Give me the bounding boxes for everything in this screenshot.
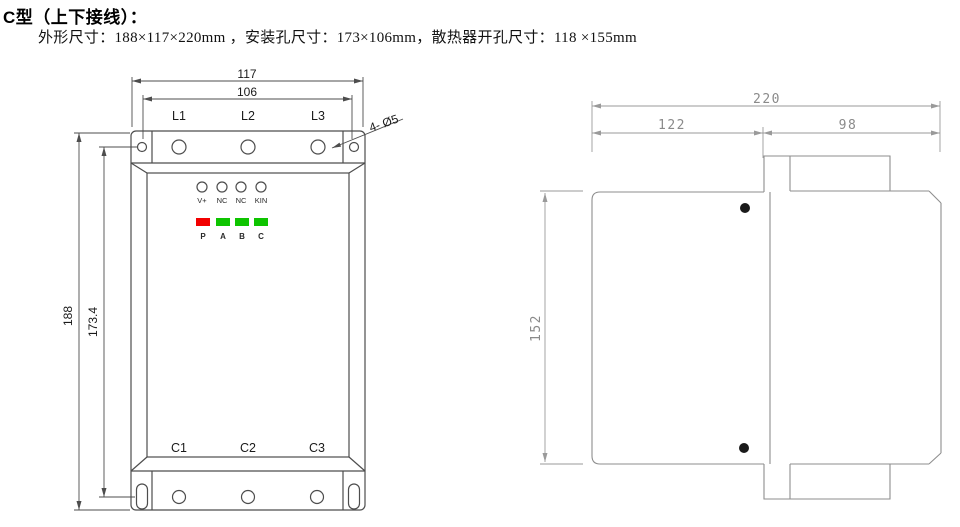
- side-view-drawing: 220 122 98 152: [529, 92, 941, 499]
- heatsink-chamfer-top: [929, 191, 941, 203]
- dim-arrow: [143, 97, 152, 102]
- bottom-terminal-cover: [764, 464, 890, 499]
- dim-arrow: [132, 79, 141, 84]
- terminal-hole-c3: [311, 491, 324, 504]
- bevel-top-left: [131, 163, 147, 173]
- dim-arrow: [754, 131, 763, 136]
- front-panel: [147, 173, 349, 457]
- dim-width-outer: 117: [237, 67, 256, 81]
- dim-arrow: [343, 97, 352, 102]
- dim-arrow: [763, 131, 772, 136]
- terminal-label-c3: C3: [309, 441, 325, 455]
- screw-dot-bottom: [739, 443, 749, 453]
- terminal-hole-c1: [173, 491, 186, 504]
- dim-depth-total: 220: [753, 92, 781, 107]
- terminal-label-l3: L3: [311, 109, 325, 123]
- dim-arrow: [77, 133, 82, 142]
- control-hole-nc1: [217, 182, 227, 192]
- terminal-hole-l3: [311, 140, 325, 154]
- dim-width-holes: 106: [237, 85, 257, 99]
- mount-slot-bottom-right: [349, 484, 360, 509]
- dim-arrow: [354, 79, 363, 84]
- led-phase-c: [254, 218, 268, 226]
- dim-height-outer: 188: [61, 306, 75, 326]
- screw-dot-top: [740, 203, 750, 213]
- control-hole-kin: [256, 182, 266, 192]
- dimension-drawings: L1 L2 L3 V+ NC NC KIN P A B C C1 C2 C3: [0, 0, 960, 527]
- led-label-p: P: [200, 232, 206, 241]
- mount-hole-note: 4- Ø5: [367, 112, 400, 135]
- terminal-label-l2: L2: [241, 109, 255, 123]
- dim-arrow: [592, 131, 601, 136]
- manual-page: C型（上下接线）： 外形尺寸：188×117×220mm ，安装孔尺寸：173×…: [0, 0, 960, 527]
- dim-height-holes: 173.4: [86, 307, 100, 337]
- heatsink-chamfer-bottom: [929, 453, 941, 464]
- dim-height-body: 152: [529, 314, 544, 342]
- terminal-hole-l1: [172, 140, 186, 154]
- dim-arrow: [543, 453, 548, 462]
- bevel-bottom-left: [131, 457, 147, 471]
- terminal-hole-l2: [241, 140, 255, 154]
- bevel-top-right: [349, 163, 365, 173]
- led-label-c: C: [258, 232, 264, 241]
- terminal-label-c1: C1: [171, 441, 187, 455]
- control-label-nc2: NC: [236, 196, 247, 205]
- front-view-drawing: L1 L2 L3 V+ NC NC KIN P A B C C1 C2 C3: [61, 67, 403, 510]
- mount-hole-top-right: [350, 143, 359, 152]
- dim-depth-heatsink: 98: [839, 118, 858, 133]
- control-hole-nc2: [236, 182, 246, 192]
- control-label-kin: KIN: [255, 196, 268, 205]
- dim-arrow: [102, 488, 107, 497]
- leader-arrow: [332, 143, 341, 148]
- mount-hole-top-left: [138, 143, 147, 152]
- bevel-bottom-right: [349, 457, 365, 471]
- terminal-label-c2: C2: [240, 441, 256, 455]
- dim-arrow: [592, 104, 601, 109]
- control-label-nc1: NC: [217, 196, 228, 205]
- dim-arrow: [931, 104, 940, 109]
- control-label-vplus: V+: [197, 196, 207, 205]
- led-label-a: A: [220, 232, 226, 241]
- dim-arrow: [931, 131, 940, 136]
- led-label-b: B: [239, 232, 245, 241]
- led-phase-a: [216, 218, 230, 226]
- terminal-label-l1: L1: [172, 109, 186, 123]
- dim-arrow: [102, 147, 107, 156]
- mount-slot-bottom-left: [137, 484, 148, 509]
- dim-arrow: [543, 193, 548, 202]
- side-body-outline: [592, 192, 764, 464]
- led-phase-b: [235, 218, 249, 226]
- terminal-hole-c2: [242, 491, 255, 504]
- top-terminal-cover: [764, 156, 890, 192]
- control-hole-vplus: [197, 182, 207, 192]
- led-power: [196, 218, 210, 226]
- dim-depth-front: 122: [658, 118, 686, 133]
- dim-arrow: [77, 501, 82, 510]
